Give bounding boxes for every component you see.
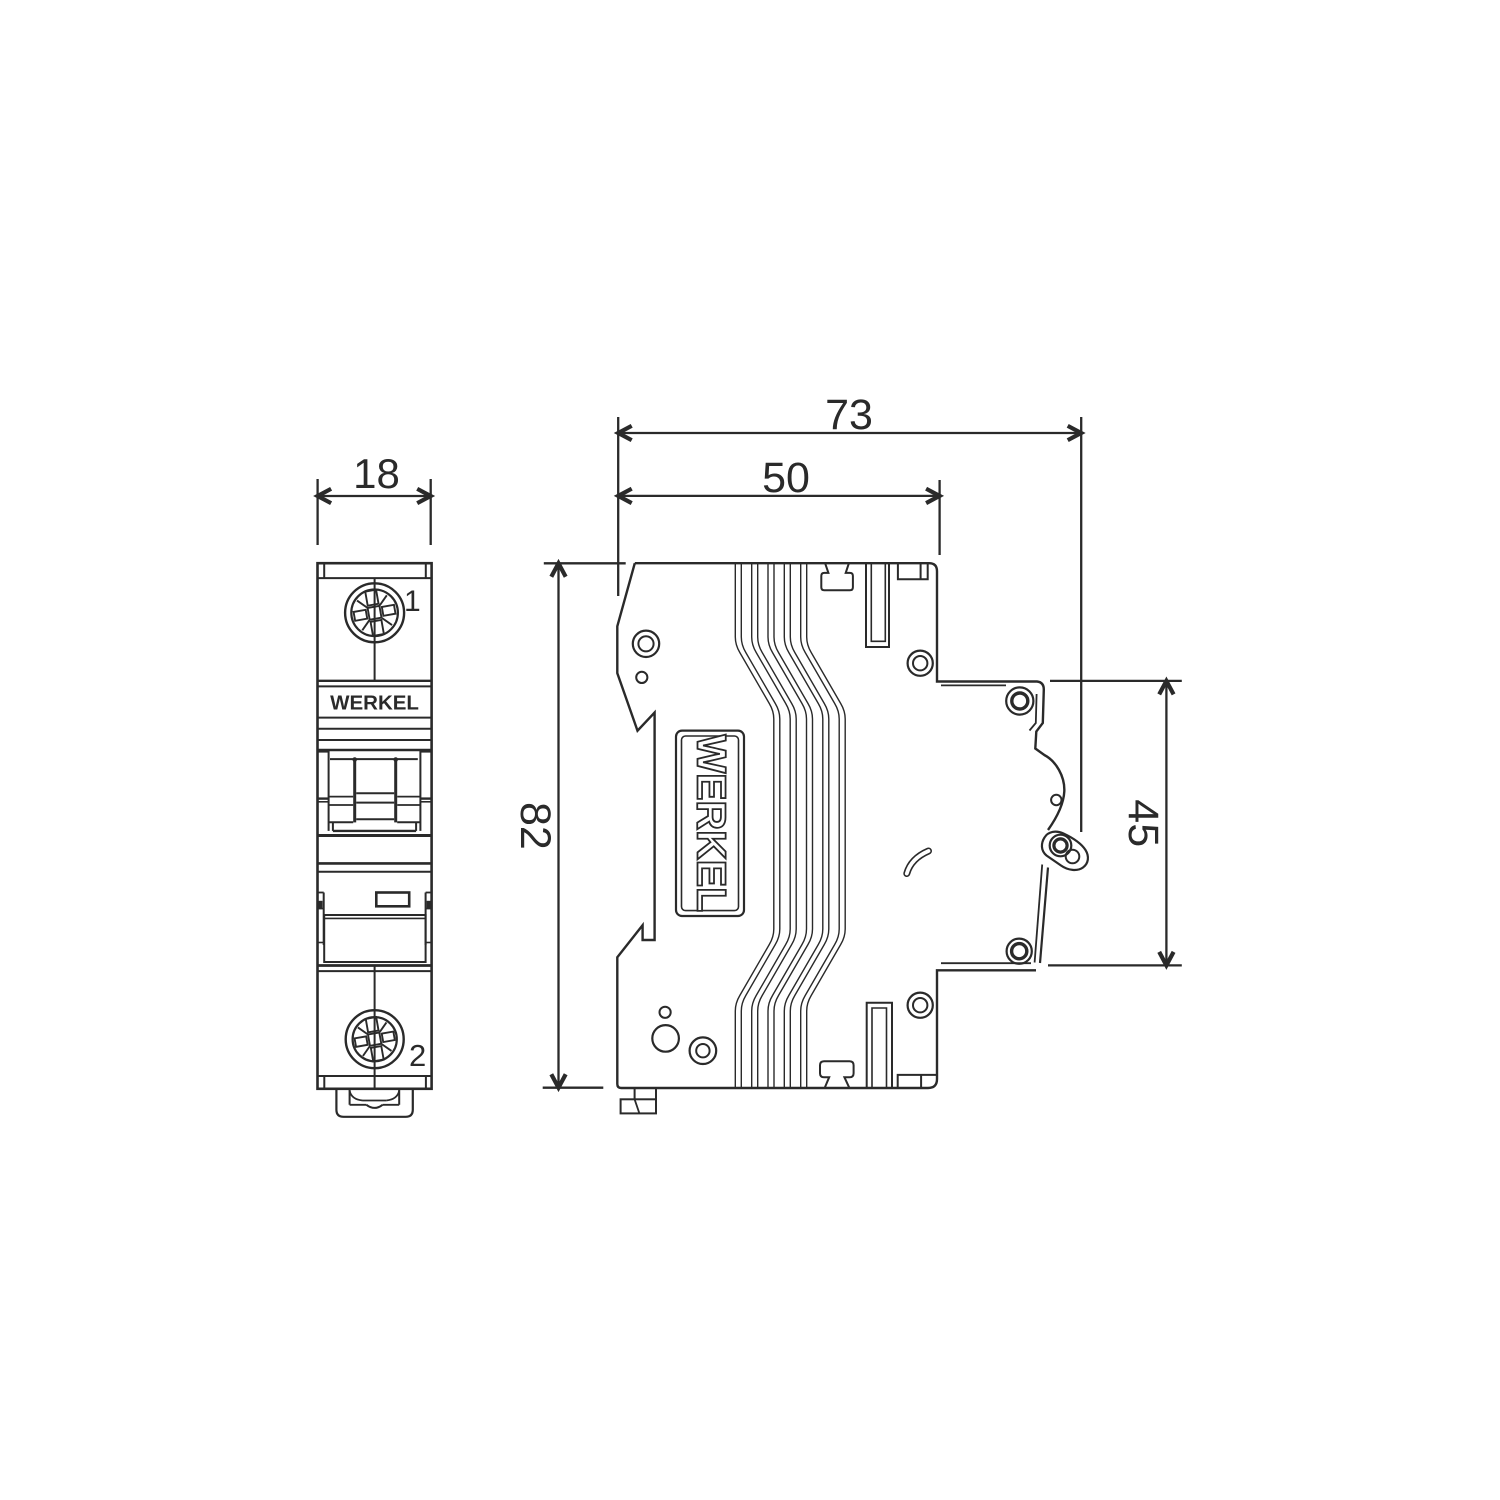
svg-text:1: 1 [404,585,421,618]
svg-text:18: 18 [353,450,400,497]
svg-text:45: 45 [1119,799,1167,847]
svg-text:2: 2 [409,1038,426,1073]
svg-text:82: 82 [511,802,559,850]
svg-text:WERKEL: WERKEL [330,692,419,715]
svg-text:50: 50 [762,454,810,502]
svg-text:WERKEL: WERKEL [688,734,734,912]
svg-text:73: 73 [825,391,873,439]
